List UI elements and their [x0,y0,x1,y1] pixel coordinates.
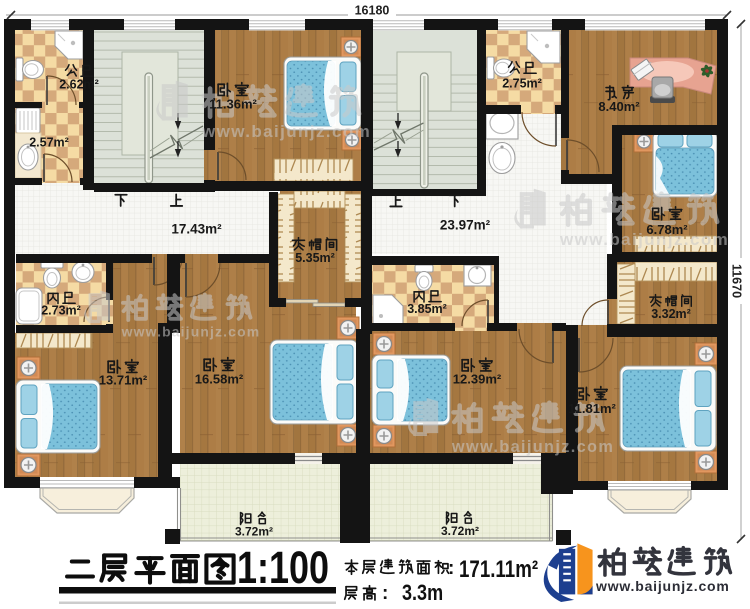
svg-text:13.71m²: 13.71m² [99,373,148,388]
svg-text:2.57m²: 2.57m² [29,136,69,150]
svg-text:3.32m²: 3.32m² [651,307,691,321]
svg-text:23.97m²: 23.97m² [440,218,491,233]
svg-text:16180: 16180 [355,4,390,18]
svg-text:3.72m²: 3.72m² [235,525,273,539]
svg-text:11.36m²: 11.36m² [209,97,257,112]
svg-text:www.baijunjz.com: www.baijunjz.com [595,578,730,594]
svg-text:3.72m²: 3.72m² [441,524,479,538]
svg-text:11.81m²: 11.81m² [568,401,616,416]
svg-text:2.62m²: 2.62m² [59,78,99,92]
svg-text:1:100: 1:100 [237,542,329,593]
svg-text::: : [448,558,454,579]
svg-text:www.baijunjz.com: www.baijunjz.com [201,122,371,141]
svg-text:3.3m: 3.3m [402,581,443,605]
svg-text:5.35m²: 5.35m² [295,251,335,265]
svg-text:16.58m²: 16.58m² [195,372,244,387]
svg-text:www.baijunjz.com: www.baijunjz.com [121,324,261,340]
svg-text:2.75m²: 2.75m² [502,77,542,91]
svg-text:12.39m²: 12.39m² [453,372,502,387]
svg-text::: : [382,583,388,604]
svg-text:17.43m²: 17.43m² [171,222,222,237]
svg-text:www.baijunjz.com: www.baijunjz.com [559,230,729,249]
svg-text:6.78m²: 6.78m² [646,222,688,237]
svg-text:3.85m²: 3.85m² [407,302,447,316]
svg-text:11670: 11670 [730,264,744,298]
svg-text:2.73m²: 2.73m² [41,304,81,318]
svg-text:8.40m²: 8.40m² [598,99,640,114]
svg-text:171.11m²: 171.11m² [459,556,538,583]
svg-text:www.baijunjz.com: www.baijunjz.com [451,438,614,456]
